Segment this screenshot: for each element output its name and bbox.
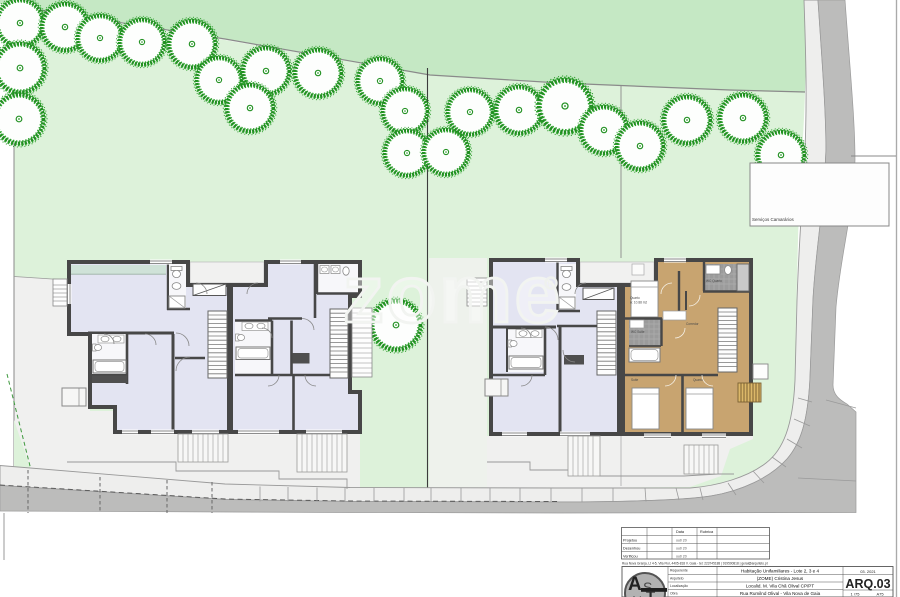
- svg-text:Rua Rumilnd Olival - Vila Nova: Rua Rumilnd Olival - Vila Nova de Gaia: [740, 591, 821, 596]
- svg-text:A: A: [628, 574, 642, 595]
- svg-text:Data: Data: [676, 530, 685, 534]
- svg-text:Suite: Suite: [631, 378, 638, 382]
- svg-text:Projetou: Projetou: [623, 539, 637, 543]
- svg-text:Verificou: Verificou: [623, 555, 638, 559]
- svg-text:Corredor: Corredor: [686, 322, 700, 326]
- svg-text:T: T: [646, 588, 655, 597]
- svg-text:(ZOME) Cristina Jesus: (ZOME) Cristina Jesus: [757, 576, 804, 581]
- svg-text:Localid. M. Vila Chã Olival CP: Localid. M. Vila Chã Olival CP/PT: [746, 584, 815, 589]
- svg-text:Localização: Localização: [670, 584, 688, 588]
- svg-text:Serviços Camarários: Serviços Camarários: [752, 217, 795, 222]
- svg-text:Obra: Obra: [670, 592, 678, 596]
- svg-text:out/ 20: out/ 20: [676, 547, 687, 551]
- svg-text:Habitação Unifamiliares - Lote: Habitação Unifamiliares - Lote 2, 3 e 4: [741, 569, 820, 574]
- svg-text:Desenhou: Desenhou: [623, 547, 640, 551]
- svg-text:out/ 20: out/ 20: [676, 539, 687, 543]
- svg-text:Rua Nova Granja, Lt 4-5, Vila: Rua Nova Granja, Lt 4-5, Vila Flor, 4405…: [622, 562, 768, 566]
- svg-text:out/ 20: out/ 20: [676, 555, 687, 559]
- svg-text:Quarto: Quarto: [693, 378, 703, 382]
- svg-text:ARQ.03: ARQ.03: [845, 577, 890, 591]
- svg-text:Quarto: Quarto: [630, 296, 640, 300]
- svg-text:WC Quarto: WC Quarto: [706, 279, 722, 283]
- svg-text:A75: A75: [876, 592, 884, 597]
- svg-text:Rubrica: Rubrica: [700, 530, 714, 534]
- svg-text:R: R: [548, 280, 554, 289]
- svg-text:Requerente: Requerente: [670, 569, 688, 573]
- svg-text:WC Suite: WC Suite: [631, 330, 645, 334]
- svg-text:1 /75: 1 /75: [851, 592, 861, 597]
- svg-text:N: N: [632, 593, 642, 597]
- svg-text:03. 2021: 03. 2021: [860, 569, 876, 574]
- svg-text:A: 10.88 m2: A: 10.88 m2: [630, 301, 647, 305]
- svg-text:zome: zome: [343, 249, 563, 340]
- svg-text:Arquiteto: Arquiteto: [670, 577, 684, 581]
